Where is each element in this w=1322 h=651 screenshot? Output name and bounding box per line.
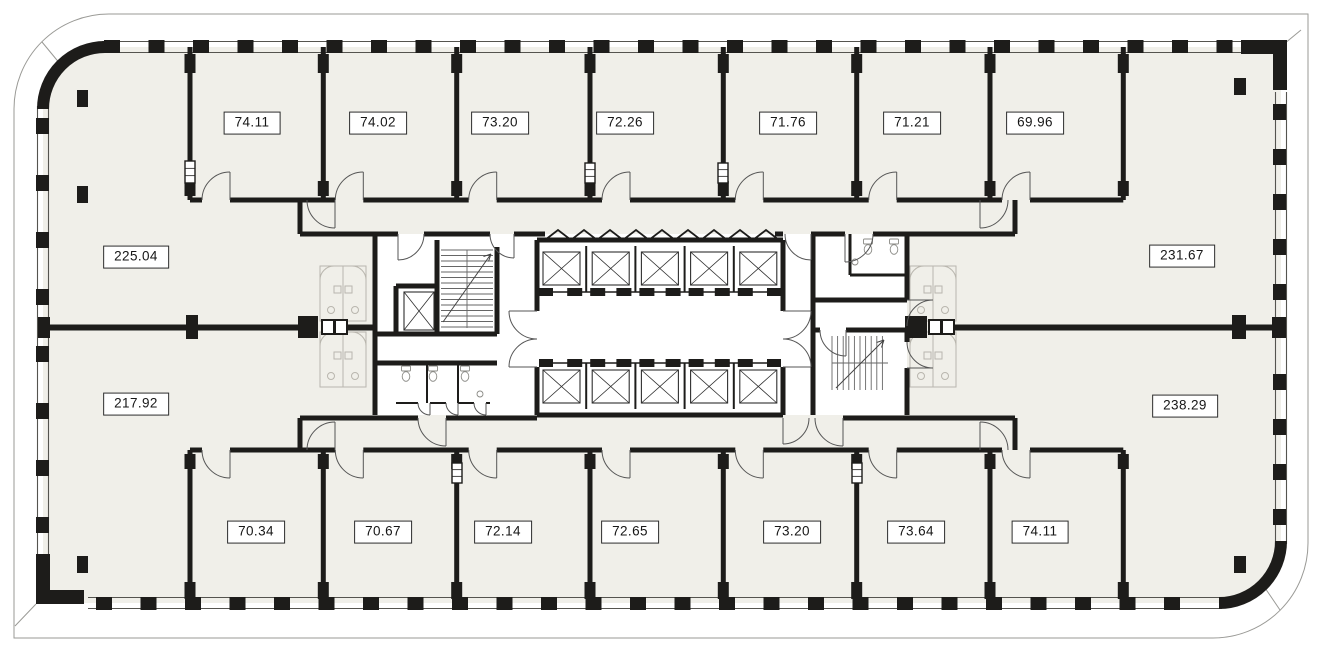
area-label-top-2: 74.02 — [349, 112, 407, 135]
area-label-right-1: 231.67 — [1149, 245, 1215, 268]
area-label-bottom-6: 73.64 — [887, 521, 945, 544]
area-label-right-2: 238.29 — [1152, 395, 1218, 418]
area-label-top-1: 74.11 — [224, 112, 281, 135]
area-label-left-1: 225.04 — [103, 246, 169, 269]
area-label-bottom-7: 74.11 — [1012, 521, 1069, 544]
area-label-bottom-3: 72.14 — [474, 521, 532, 544]
area-label-top-5: 71.76 — [759, 112, 817, 135]
area-label-top-6: 71.21 — [883, 112, 941, 135]
area-label-bottom-1: 70.34 — [227, 521, 285, 544]
area-label-top-7: 69.96 — [1006, 112, 1064, 135]
area-label-bottom-4: 72.65 — [601, 521, 659, 544]
floor-plan-canvas: 74.11 74.02 73.20 72.26 71.76 71.21 69.9… — [0, 0, 1322, 651]
area-label-bottom-5: 73.20 — [763, 521, 821, 544]
area-label-bottom-2: 70.67 — [354, 521, 412, 544]
area-label-top-3: 73.20 — [471, 112, 529, 135]
floor-plan-drawing — [0, 0, 1322, 651]
area-label-left-2: 217.92 — [103, 393, 169, 416]
area-label-top-4: 72.26 — [596, 112, 654, 135]
